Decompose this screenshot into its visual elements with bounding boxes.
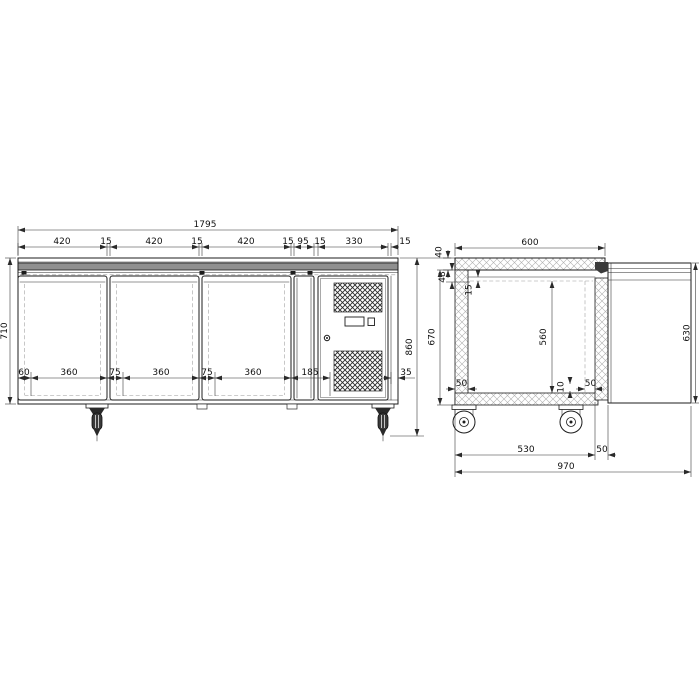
dim-overall-depth: 970 [557, 462, 574, 472]
dim-bottom-1: 360 [60, 368, 77, 378]
dim-left-wall: 50 [456, 379, 468, 389]
door-3 [202, 276, 291, 400]
refrigerator-dimension-drawing: 1795 420 15 420 15 420 15 95 15 330 15 [0, 0, 700, 700]
caster-front-right [372, 404, 394, 441]
caster-side-left [452, 405, 476, 433]
dim-overall-width: 1795 [194, 220, 217, 230]
dim-right-wall: 50 [585, 379, 597, 389]
dim-bottom-5: 360 [244, 368, 261, 378]
dim-top-1: 15 [100, 237, 111, 247]
control-display [345, 317, 364, 326]
bottom-wall-section [455, 393, 598, 405]
dim-bottom-3: 360 [152, 368, 169, 378]
worktop-section [455, 258, 605, 270]
dim-top-5: 15 [282, 237, 293, 247]
compressor-panel [318, 276, 388, 400]
dim-door-height: 630 [683, 324, 693, 341]
hinge-bracket [595, 262, 608, 274]
door-1 [18, 276, 107, 400]
dim-liner-gap: 15 [465, 284, 475, 295]
hinge-mark-4 [308, 271, 313, 275]
dim-height: 710 [0, 322, 10, 339]
dim-body-height: 670 [428, 328, 438, 345]
dim-bottom-2: 75 [109, 368, 120, 378]
dim-top-7: 15 [314, 237, 325, 247]
dim-top-0: 420 [53, 237, 70, 247]
dim-top-8: 330 [345, 237, 362, 247]
dim-overall-height: 860 [405, 338, 415, 355]
vent-grille-top [334, 283, 382, 312]
dim-interior-height: 560 [539, 328, 549, 345]
dim-top-9: 15 [399, 237, 410, 247]
dim-door-thickness: 50 [596, 445, 608, 455]
dim-base-depth: 530 [517, 445, 534, 455]
dim-depth: 600 [521, 238, 538, 248]
dim-top-inset: 48 [438, 271, 448, 283]
rear-foot-2 [287, 404, 297, 409]
side-view: 600 40 48 15 670 560 10 50 [428, 238, 700, 477]
door-2 [110, 276, 199, 400]
dim-bottom-0: 60 [18, 368, 30, 378]
dim-bottom-4: 75 [201, 368, 212, 378]
dim-top-thickness: 40 [435, 246, 445, 258]
vent-grille-bottom [334, 351, 382, 391]
caster-side-right [559, 405, 583, 433]
dim-right-rail: 35 [400, 368, 411, 378]
dim-bottom-step: 10 [557, 381, 567, 393]
dim-top-2: 420 [145, 237, 162, 247]
door-section [595, 278, 608, 400]
dim-top-6: 95 [297, 237, 308, 247]
dim-bottom-6: 185 [301, 368, 318, 378]
control-switch [368, 318, 375, 326]
hinge-mark-2 [200, 271, 205, 275]
technical-drawing-page: 1795 420 15 420 15 420 15 95 15 330 15 [0, 0, 700, 700]
worktop-front-strip [18, 263, 398, 270]
narrow-panel [294, 276, 314, 400]
dim-top-4: 420 [237, 237, 254, 247]
dim-top-3: 15 [191, 237, 202, 247]
hinge-mark-3 [291, 271, 296, 275]
front-view: 1795 420 15 420 15 420 15 95 15 330 15 [0, 220, 451, 441]
rear-foot-1 [197, 404, 207, 409]
caster-front-left [86, 404, 108, 441]
hinge-mark-1 [22, 271, 27, 275]
door-side-panel [608, 263, 691, 403]
